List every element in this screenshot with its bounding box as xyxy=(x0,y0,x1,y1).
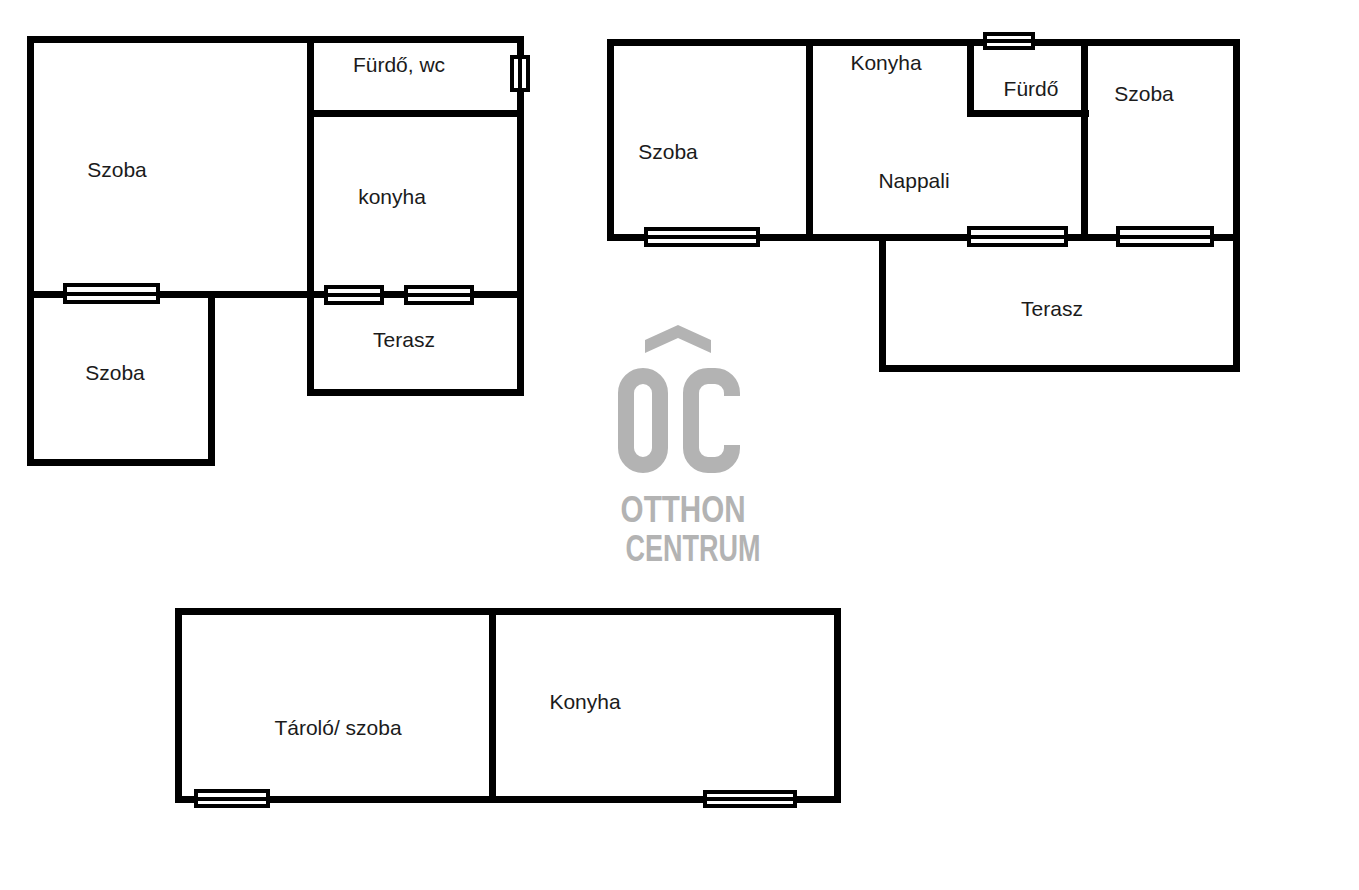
floor-plan-sheet: SzobaFürdő, wckonyhaTeraszSzobaSzobaKony… xyxy=(0,0,1359,890)
brand-name-line1: OTTHON xyxy=(603,491,763,528)
room-label: Tároló/ szoba xyxy=(274,717,401,738)
wall xyxy=(834,608,841,803)
window-symbol xyxy=(703,790,797,808)
window-pane-line xyxy=(198,797,266,801)
bottom-unit: Tároló/ szobaKonyha xyxy=(0,0,1359,890)
brand-name-line2-text: CENTRUM xyxy=(625,531,760,567)
wall xyxy=(175,608,182,803)
wall xyxy=(489,608,496,803)
wall xyxy=(175,608,841,615)
room-label: Konyha xyxy=(549,691,620,712)
window-pane-line xyxy=(707,797,793,801)
brand-name-line2: CENTRUM xyxy=(603,531,763,567)
window-symbol xyxy=(194,789,270,808)
brand-name-line1-text: OTTHON xyxy=(621,491,746,528)
